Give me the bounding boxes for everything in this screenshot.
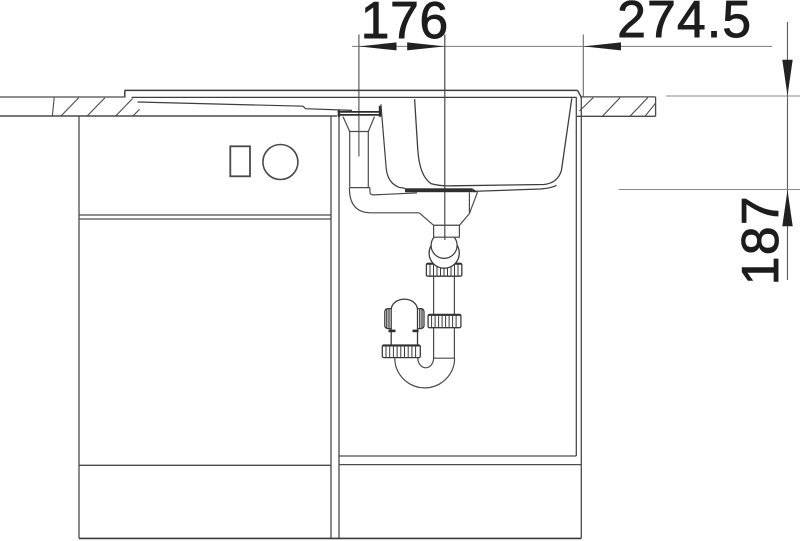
- svg-text:176: 176: [361, 0, 449, 49]
- svg-text:274.5: 274.5: [617, 0, 752, 48]
- svg-text:187: 187: [731, 195, 789, 285]
